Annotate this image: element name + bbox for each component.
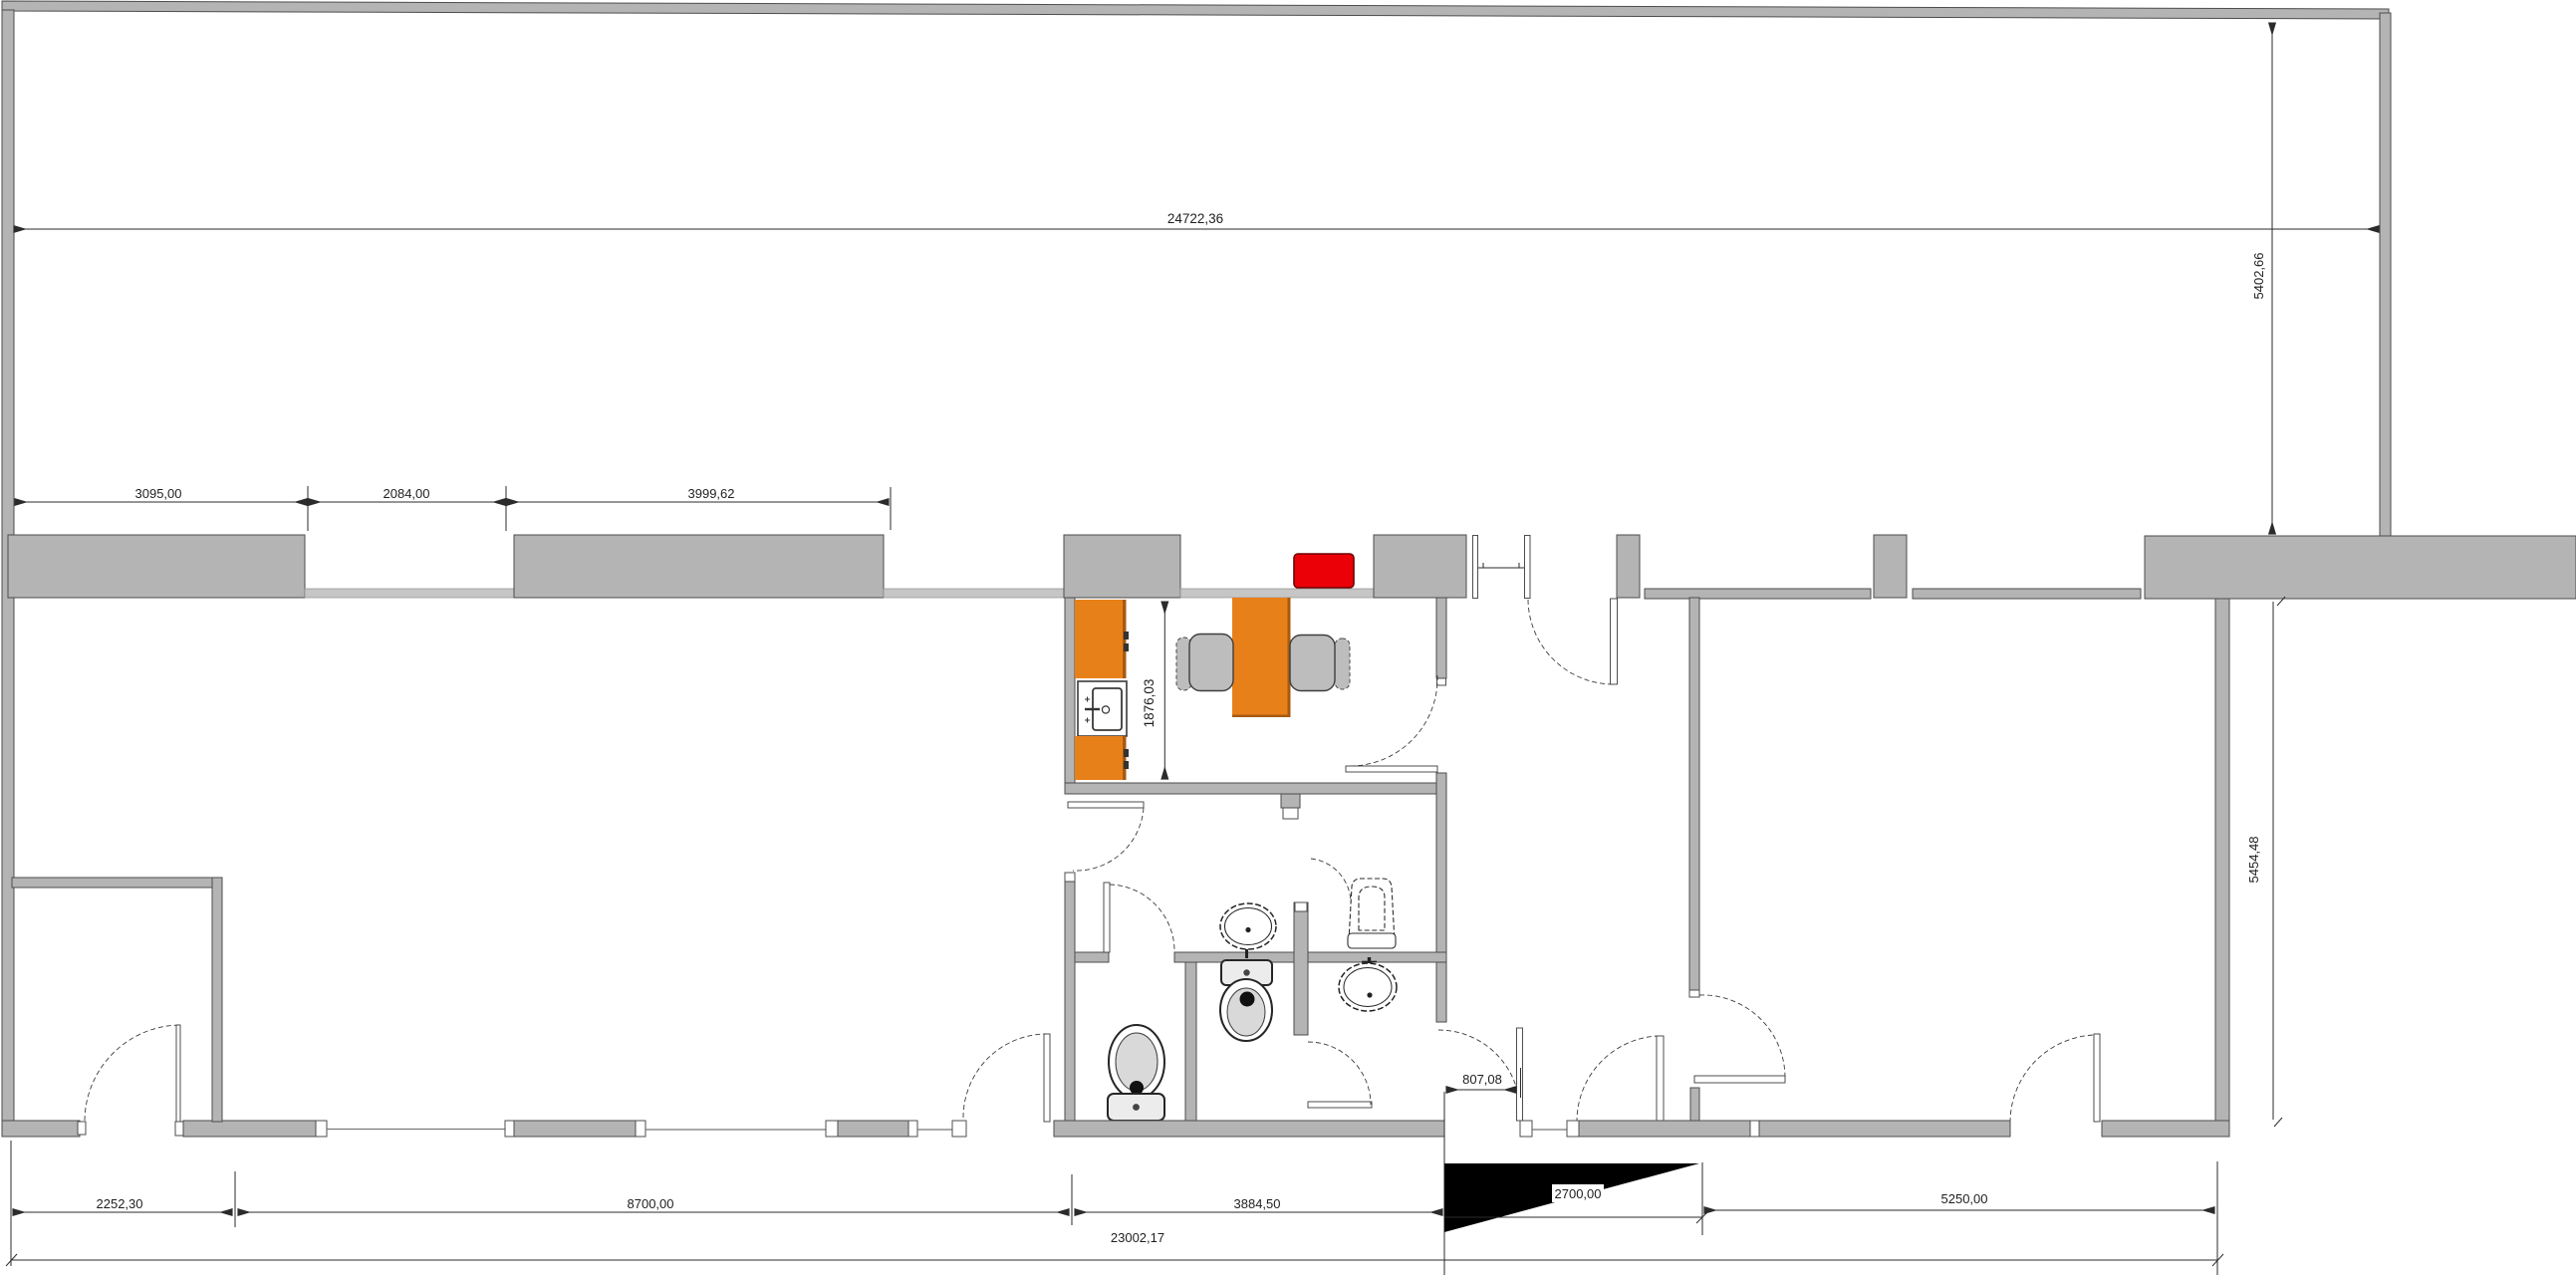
svg-text:1876,03: 1876,03 <box>1142 679 1157 728</box>
svg-text:24722,36: 24722,36 <box>1167 211 1223 226</box>
svg-text:5402,66: 5402,66 <box>2251 253 2266 300</box>
svg-text:3999,62: 3999,62 <box>688 486 735 501</box>
svg-text:5250,00: 5250,00 <box>1941 1191 1988 1206</box>
svg-text:3884,50: 3884,50 <box>1234 1196 1281 1211</box>
svg-text:8700,00: 8700,00 <box>628 1196 674 1211</box>
svg-text:2252,30: 2252,30 <box>97 1196 143 1211</box>
svg-text:2084,00: 2084,00 <box>384 486 430 501</box>
svg-text:3095,00: 3095,00 <box>135 486 182 501</box>
svg-text:5454,48: 5454,48 <box>2246 837 2261 884</box>
svg-text:807,08: 807,08 <box>1462 1072 1502 1087</box>
svg-text:23002,17: 23002,17 <box>1111 1230 1164 1245</box>
svg-text:2700,00: 2700,00 <box>1555 1186 1602 1201</box>
